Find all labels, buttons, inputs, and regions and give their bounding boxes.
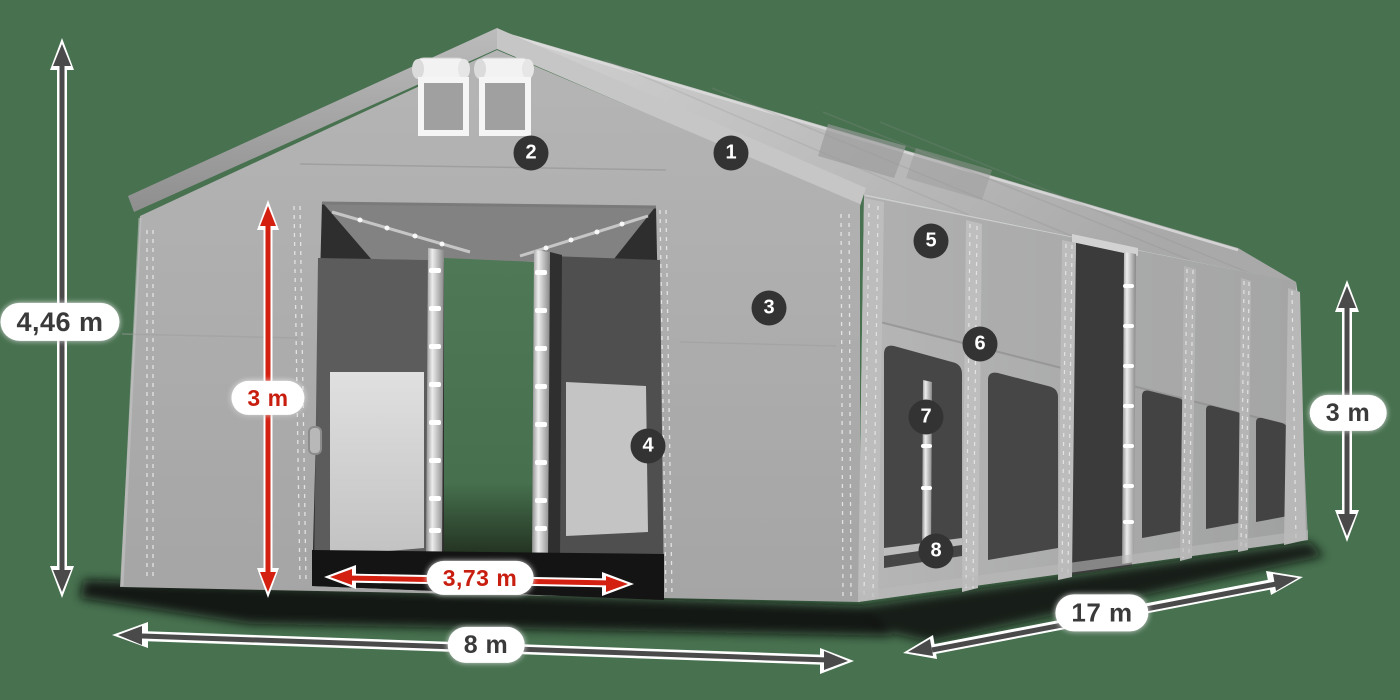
see-through-opening bbox=[444, 258, 536, 558]
dimension-label-side-length: 17 m bbox=[1055, 594, 1148, 631]
dimension-label-front-width: 8 m bbox=[448, 627, 525, 663]
door-pole bbox=[532, 250, 550, 558]
side-window bbox=[1256, 418, 1288, 522]
marker-badge-3: 3 bbox=[752, 291, 787, 326]
marker-badge-5: 5 bbox=[914, 224, 949, 259]
tent-illustration bbox=[0, 0, 1400, 700]
marker-badge-6: 6 bbox=[963, 327, 998, 362]
side-window bbox=[1142, 391, 1186, 538]
marker-badge-8: 8 bbox=[919, 534, 954, 569]
interior-window bbox=[330, 372, 424, 556]
front-door-handle bbox=[309, 427, 321, 454]
marker-badge-1: 1 bbox=[714, 136, 749, 171]
front-entrance-opening bbox=[312, 202, 664, 600]
door-pole bbox=[426, 248, 444, 560]
vent-window-icon bbox=[474, 58, 534, 133]
marker-badge-4: 4 bbox=[631, 429, 666, 464]
dimension-label-side-height: 3 m bbox=[1310, 395, 1387, 431]
marker-badge-2: 2 bbox=[514, 136, 549, 171]
marker-badge-7: 7 bbox=[909, 400, 944, 435]
dimension-label-door-width: 3,73 m bbox=[427, 561, 534, 595]
side-window bbox=[988, 373, 1058, 560]
vent-window-icon bbox=[412, 58, 470, 133]
tent-dimension-diagram: 1 2 3 4 5 6 7 8 4,46 m 3 m 3,73 m 8 m 17… bbox=[0, 0, 1400, 700]
dimension-label-door-height: 3 m bbox=[231, 381, 304, 415]
side-window bbox=[1206, 406, 1244, 530]
dimension-label-ridge-height: 4,46 m bbox=[0, 303, 119, 341]
